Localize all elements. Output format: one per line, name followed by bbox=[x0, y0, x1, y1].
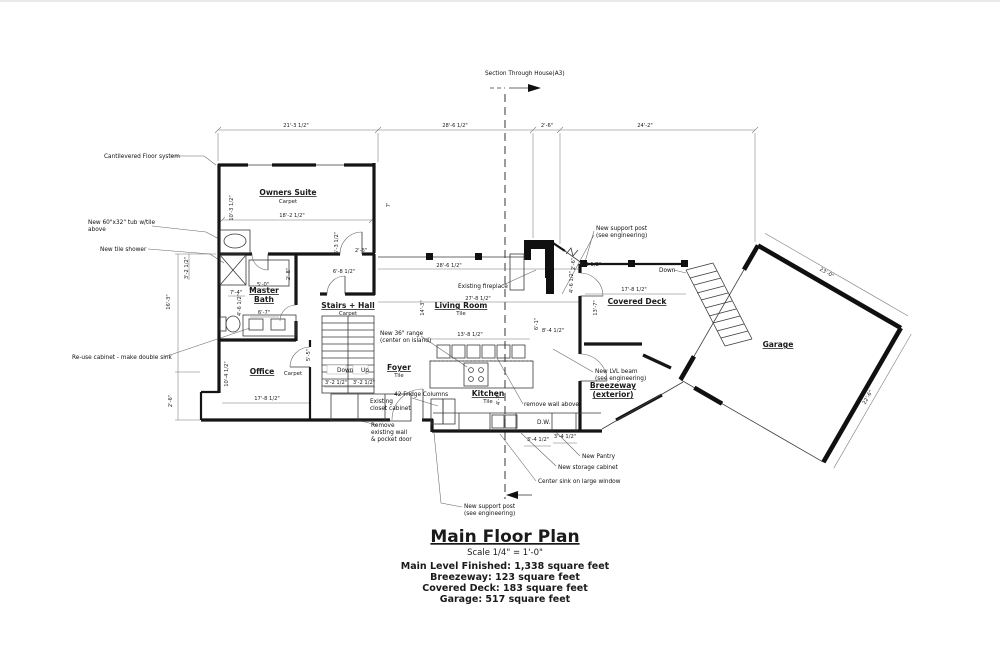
room-label: Breezeway bbox=[590, 381, 636, 390]
dimension-label: 4'-6 1/2" bbox=[569, 271, 575, 293]
kitchen-sink bbox=[492, 415, 504, 428]
annotation-label: (center on island) bbox=[380, 338, 431, 344]
dimension-label: 13'-7" bbox=[593, 300, 599, 316]
kitchen-fixtures bbox=[430, 345, 601, 431]
annotation-label: New 60"x32" tub w/tile bbox=[88, 220, 156, 226]
annotation-label: closet cabinet bbox=[370, 406, 411, 412]
floor-finish-label: Carpet bbox=[339, 311, 357, 317]
dimension-label: 14'-3" bbox=[420, 300, 426, 316]
dimension-label: 5'-5" bbox=[306, 349, 312, 361]
floor-finish-label: Tile bbox=[455, 311, 466, 317]
annotation-label: Existing bbox=[370, 399, 393, 405]
annotation-label: New 36" range bbox=[380, 331, 424, 337]
dimension-label: 7' bbox=[386, 203, 392, 208]
dimension-label: 2'-8" bbox=[286, 268, 292, 280]
stat-breezeway: Breezeway: 123 square feet bbox=[430, 572, 580, 583]
room-label: Stairs + Hall bbox=[321, 301, 374, 310]
room-label: Covered Deck bbox=[608, 297, 668, 306]
annotation-label: Center sink on large window bbox=[538, 479, 621, 485]
plan-title: Main Floor Plan bbox=[430, 527, 579, 547]
stat-garage: Garage: 517 square feet bbox=[440, 594, 571, 605]
plan-scale: Scale 1/4" = 1'-0" bbox=[467, 548, 543, 558]
floor-plan-sheet: Owners SuiteMasterBathOfficeStairs + Hal… bbox=[0, 0, 1000, 650]
annotation-label: D.W. bbox=[537, 420, 550, 426]
room-label: Office bbox=[250, 367, 275, 376]
dimension-label: 4'-7" bbox=[496, 393, 502, 405]
dimension-label: 2'-6" bbox=[541, 123, 553, 129]
annotation-label: existing wall bbox=[371, 430, 408, 436]
dimension-label: 6'-8 1/2" bbox=[333, 269, 355, 275]
floor-finish-label: Carpet bbox=[284, 371, 302, 377]
dimension-label: 4'-3 1/2" bbox=[579, 262, 601, 268]
dimension-label: 17'-8 1/2" bbox=[621, 287, 647, 293]
deck-stairs bbox=[686, 263, 752, 346]
annotation-label: New storage cabinet bbox=[558, 465, 619, 471]
dimension-label: 4'-6 1/2" bbox=[237, 294, 243, 316]
sink-left bbox=[249, 319, 263, 330]
annotation-label: New tile shower bbox=[100, 247, 147, 253]
vanity bbox=[243, 315, 296, 336]
room-label: Owners Suite bbox=[259, 188, 316, 197]
toilet bbox=[226, 316, 240, 332]
dimension-label: 5'-3 1/2" bbox=[334, 232, 340, 254]
room-label: Garage bbox=[763, 340, 794, 349]
dimension-label: 10'-4 1/2" bbox=[224, 361, 230, 387]
floor-plan-canvas: Owners SuiteMasterBathOfficeStairs + Hal… bbox=[0, 2, 1000, 650]
dimension-label: 28'-6 1/2" bbox=[442, 123, 468, 129]
annotation-label: (see engineering) bbox=[464, 511, 515, 517]
annotation-label: above bbox=[88, 227, 106, 233]
dimension-label: 8'-4 1/2" bbox=[542, 328, 564, 334]
annotation-label: Re-use cabinet - make double sink bbox=[72, 355, 173, 361]
dimension-label: 5'-0" bbox=[257, 282, 269, 288]
annotation-label: Up bbox=[361, 368, 369, 374]
dimension-label: 3'-4 1/2" bbox=[554, 434, 576, 440]
fridge-column bbox=[443, 399, 455, 424]
fireplace bbox=[510, 240, 554, 294]
section-arrow-top bbox=[528, 84, 541, 92]
dimension-label: 16'-3" bbox=[166, 294, 172, 310]
range bbox=[464, 363, 488, 386]
tub bbox=[220, 230, 250, 253]
dimension-label: 10'-3 1/2" bbox=[229, 195, 235, 221]
dimension-label: 3'-4 1/2" bbox=[527, 437, 549, 443]
kitchen-island bbox=[430, 361, 533, 388]
toilet-tank bbox=[220, 317, 226, 331]
annotation-label: (see engineering) bbox=[596, 233, 647, 239]
stat-covered-deck: Covered Deck: 183 square feet bbox=[422, 583, 588, 594]
room-label: (exterior) bbox=[592, 390, 633, 399]
dimension-label: 2'-6" bbox=[571, 258, 577, 270]
dimension-label: 6'-7" bbox=[258, 310, 270, 316]
annotation-label: New Pantry bbox=[582, 454, 616, 460]
sink-right bbox=[271, 319, 285, 330]
annotation-label: New LVL beam bbox=[595, 369, 638, 375]
floor-finish-label: Tile bbox=[482, 399, 493, 405]
dimension-label: 28'-6 1/2" bbox=[436, 263, 462, 269]
dimension-label: 2'-6" bbox=[355, 248, 367, 254]
floor-finish-label: Tile bbox=[393, 373, 404, 379]
dimension-label: 3'-2 1/2" bbox=[184, 257, 190, 279]
dimension-label: 18'-2 1/2" bbox=[279, 213, 305, 219]
annotation-label: remove wall above bbox=[524, 402, 579, 408]
dimension-label: 21'-3 1/2" bbox=[283, 123, 309, 129]
dimension-label: 2'-6" bbox=[168, 395, 174, 407]
room-label: Foyer bbox=[387, 363, 411, 372]
dimension-label: 13'-8 1/2" bbox=[457, 332, 483, 338]
section-arrow-bottom bbox=[506, 491, 518, 499]
stat-main-level: Main Level Finished: 1,338 square feet bbox=[401, 561, 610, 572]
dimension-label: 27'-8 1/2" bbox=[465, 296, 491, 302]
annotation-label: 42 Fridge Columns bbox=[394, 392, 448, 398]
dimension-label: 6'-1" bbox=[534, 318, 540, 330]
annotation-label: New support post bbox=[464, 504, 516, 510]
annotation-label: Cantilevered Floor system bbox=[104, 154, 180, 160]
annotation-label: Remove bbox=[371, 423, 395, 429]
annotation-label: New support post bbox=[596, 226, 648, 232]
dimension-label: 23'-0" bbox=[818, 267, 835, 280]
dimension-label: 3'-2 1/2" bbox=[325, 380, 347, 386]
annotation-label: Existing fireplace bbox=[458, 284, 508, 290]
annotation-label: (see engineering) bbox=[595, 376, 646, 382]
annotation-label: Section Through House(A3) bbox=[485, 71, 565, 77]
room-label: Bath bbox=[254, 295, 274, 304]
room-label: Living Room bbox=[435, 301, 488, 310]
annotation-label: & pocket door bbox=[371, 437, 412, 443]
dimension-label: 17'-8 1/2" bbox=[254, 396, 280, 402]
floor-finish-label: Carpet bbox=[279, 199, 297, 205]
annotation-label: Down bbox=[659, 268, 676, 274]
dimension-labels: 21'-3 1/2"28'-6 1/2"2'-6"24'-2"18'-2 1/2… bbox=[166, 123, 875, 443]
annotation-label: Down bbox=[337, 368, 354, 374]
dimension-label: 3'-2 1/2" bbox=[353, 380, 375, 386]
dimension-label: 24'-2" bbox=[637, 123, 653, 129]
title-block: Main Floor Plan Scale 1/4" = 1'-0" Main … bbox=[401, 527, 610, 605]
